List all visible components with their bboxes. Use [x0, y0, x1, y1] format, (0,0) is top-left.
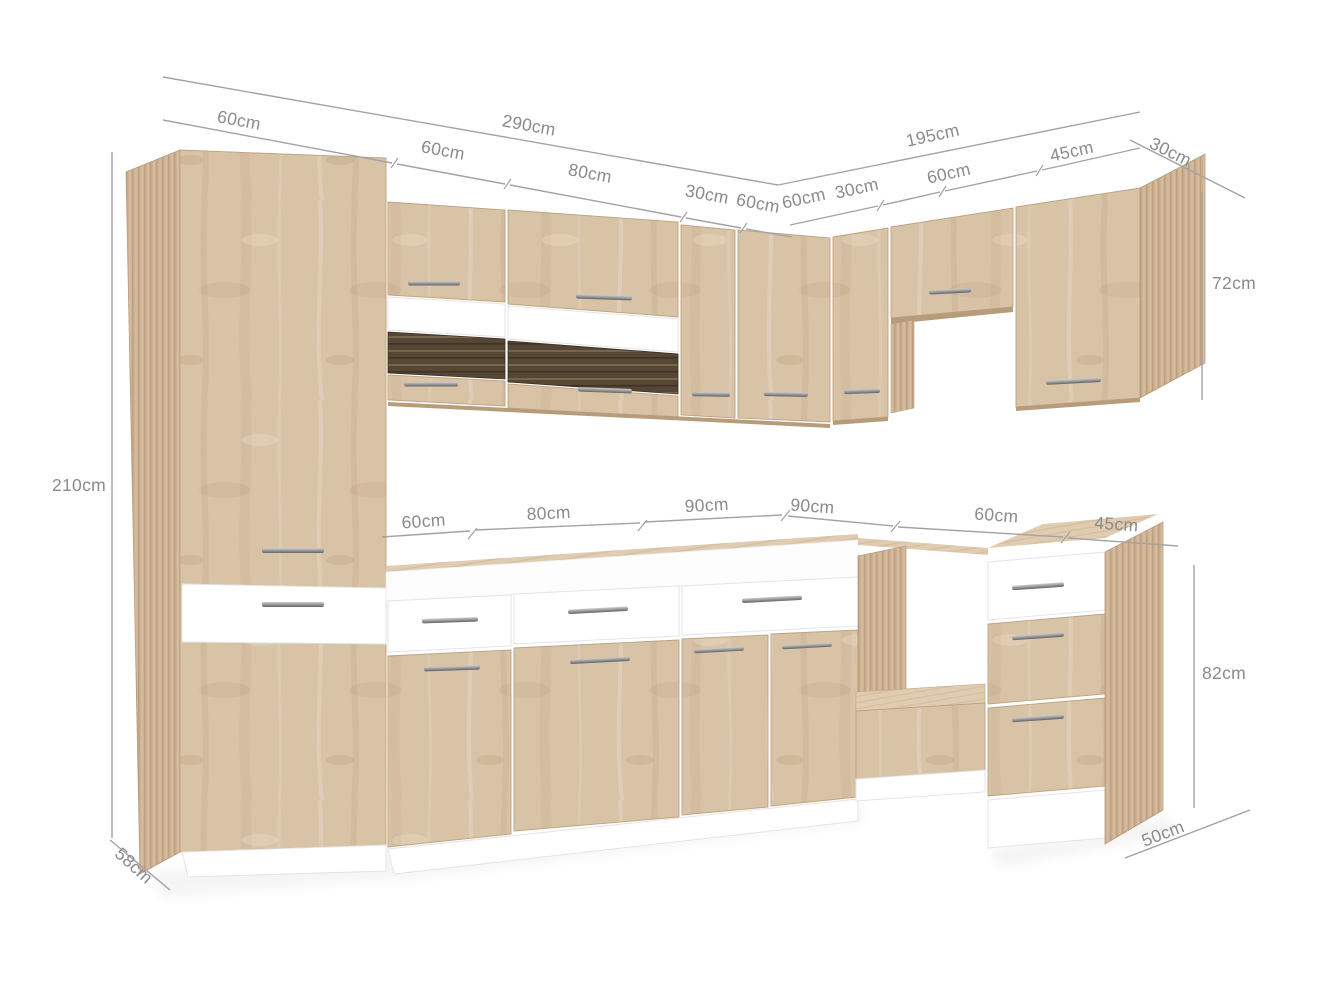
- wall-cab-60-upper-handle: [408, 281, 460, 286]
- base-90-drawer-front: [682, 577, 858, 635]
- dim-line-rwall-60: [790, 206, 878, 225]
- tall-cabinet-white-drawer: [182, 584, 386, 644]
- dim-label-right-total: 195cm: [904, 120, 961, 151]
- dim-tick: [638, 520, 647, 531]
- base-45-drawer3: [988, 698, 1105, 796]
- dim-line-wall-60: [397, 164, 505, 184]
- wall-cab-60-lower-handle: [404, 382, 458, 387]
- dim-line-rwall-30: [883, 192, 940, 205]
- tall-cabinet-front: [180, 150, 386, 852]
- dim-tick: [391, 158, 398, 168]
- dim-label-base-80: 80cm: [526, 502, 571, 524]
- oven-bay-low-box-front: [856, 703, 985, 779]
- dim-label-rwall-60b: 60cm: [925, 159, 972, 188]
- wall-cab-60-white-strip: [388, 297, 505, 337]
- dim-tick: [939, 186, 946, 197]
- wall-cab-60-upper-door: [388, 202, 505, 302]
- dim-tick: [680, 212, 687, 222]
- base-80-drawer-front: [514, 586, 679, 644]
- dim-label-tall-width: 60cm: [216, 106, 263, 134]
- dim-label-wall-depth: 30cm: [1146, 133, 1194, 170]
- dim-tick: [468, 528, 477, 539]
- dim-label-base-90: 90cm: [684, 494, 729, 516]
- dim-tick: [1036, 165, 1043, 176]
- hood-recess-side-wall: [891, 320, 914, 413]
- dim-label-rbase-60: 60cm: [974, 504, 1019, 527]
- tall-drawer-handle: [262, 602, 324, 607]
- dim-label-base-height: 82cm: [1202, 663, 1246, 683]
- dim-line-base-80: [475, 523, 640, 530]
- wall-cab-30-door: [681, 225, 735, 418]
- dim-line-rbase-90: [788, 516, 893, 526]
- base-45-plinth: [988, 790, 1105, 848]
- wall-cab-corner-handle: [764, 392, 808, 397]
- dim-label-wall-corner-60: 60cm: [735, 189, 782, 217]
- base-90-door-right: [771, 630, 858, 806]
- base-60-door: [388, 650, 511, 847]
- dim-label-rwall-45: 45cm: [1048, 137, 1095, 166]
- dim-label-rwall-60: 60cm: [780, 184, 827, 213]
- base-90-door-left: [682, 635, 768, 815]
- dim-label-wall-30: 30cm: [684, 180, 731, 208]
- dim-label-rbase-90: 90cm: [790, 495, 835, 518]
- wall-cab-60-glass-panel: [388, 332, 505, 379]
- kitchen-dimension-diagram: 290cm 60cm 60cm 80cm 30cm 60cm 195cm 60c…: [0, 0, 1320, 990]
- tall-cabinet-side-panel: [126, 150, 180, 874]
- wall-cab-30-handle: [692, 392, 730, 397]
- dim-label-rwall-30: 30cm: [833, 174, 880, 203]
- tall-upper-door-handle: [262, 548, 324, 553]
- dim-label-rbase-45: 45cm: [1094, 513, 1139, 536]
- dim-tick: [877, 200, 884, 211]
- dim-line-base-60: [382, 531, 470, 537]
- rwall-cab-45-door: [1016, 188, 1140, 407]
- hood-cabinet-door: [891, 208, 1013, 318]
- dim-label-wall-60: 60cm: [420, 136, 467, 164]
- base-80-door: [514, 640, 679, 831]
- wall-cab-80-upper-door: [508, 210, 678, 317]
- dim-tick: [504, 179, 511, 189]
- dim-label-left-total: 290cm: [501, 110, 558, 139]
- base-45-side-panel: [1105, 522, 1163, 844]
- dim-label-tall-height: 210cm: [52, 475, 106, 495]
- dim-line-base-90: [645, 515, 782, 522]
- dim-label-base-60: 60cm: [401, 510, 446, 533]
- base-45-drawer2: [988, 614, 1105, 704]
- rwall-cab-45-side-panel: [1140, 154, 1205, 398]
- dim-label-wall-height: 72cm: [1212, 273, 1256, 293]
- dim-label-wall-80: 80cm: [567, 159, 614, 187]
- wall-cab-60-bottom-rail: [388, 375, 505, 406]
- base-60-drawer-front: [388, 595, 511, 652]
- diagram-canvas: 290cm 60cm 60cm 80cm 30cm 60cm 195cm 60c…: [0, 0, 1320, 990]
